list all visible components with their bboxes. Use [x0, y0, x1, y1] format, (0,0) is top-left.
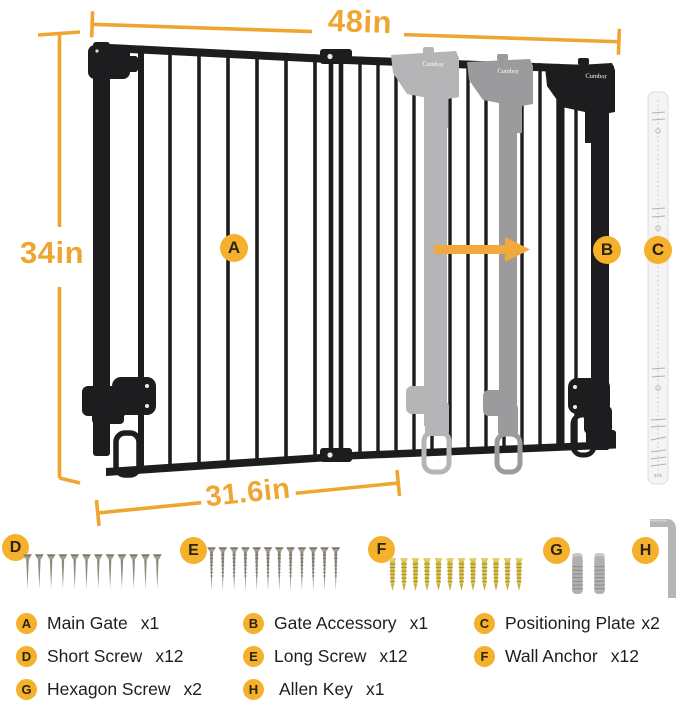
brand-logo: Cumbor	[422, 61, 444, 69]
positioning-plate: 34in	[648, 92, 668, 484]
wall-anchor-icons	[388, 558, 528, 594]
legend-badge-f: F	[474, 646, 495, 667]
legend-count: x1	[366, 679, 384, 700]
parts-group-allen-key: H	[632, 537, 678, 603]
product-diagram: Cumbor Cumbor Cumbor	[0, 0, 679, 705]
legend-count: x12	[155, 646, 183, 667]
legend-badge-b: B	[243, 613, 264, 634]
junction-clamps	[320, 49, 352, 462]
part-badge-g: G	[543, 537, 570, 564]
legend-item-wall-anchor: F Wall Anchor x12	[474, 646, 669, 667]
brand-logo: Cumbor	[497, 68, 519, 76]
legend-label: Wall Anchor	[505, 646, 598, 667]
legend-badge-d: D	[16, 646, 37, 667]
dimension-height-left: 34in	[13, 237, 91, 268]
short-screw-icons	[23, 554, 169, 594]
legend-label: Gate Accessory	[274, 613, 397, 634]
parts-group-hexagon-screws: G	[543, 537, 613, 603]
legend-label: Allen Key	[279, 679, 353, 700]
extension-bars	[360, 57, 576, 459]
legend-badge-a: A	[16, 613, 37, 634]
long-screw-icons	[207, 547, 343, 597]
legend-badge-g: G	[16, 679, 37, 700]
legend-item-short-screw: D Short Screw x12	[16, 646, 243, 667]
legend-count: x1	[410, 613, 428, 634]
dimension-width-top: 48in	[314, 4, 405, 38]
parts-group-short-screws: D	[2, 534, 172, 600]
legend-item-gate-accessory: B Gate Accessory x1	[243, 613, 474, 634]
parts-group-wall-anchors: F	[368, 536, 528, 602]
legend-count: x12	[379, 646, 407, 667]
left-post	[82, 42, 156, 456]
callout-c-positioning-plate: C	[644, 236, 672, 264]
callout-b-gate-accessory: B	[593, 236, 621, 264]
legend-item-long-screw: E Long Screw x12	[243, 646, 474, 667]
legend-item-allen-key: H Allen Key x1	[243, 679, 474, 700]
plate-micro-label: 34in	[654, 473, 663, 478]
legend-badge-h: H	[243, 679, 264, 700]
legend-label: Long Screw	[274, 646, 366, 667]
brand-logo: Cumbor	[585, 73, 607, 81]
allen-key-icon	[642, 514, 678, 602]
hexagon-screw-icons	[569, 553, 609, 595]
parts-group-long-screws: E	[180, 537, 346, 603]
legend-badge-e: E	[243, 646, 264, 667]
legend-item-main-gate: A Main Gate x1	[16, 613, 243, 634]
legend-label: Short Screw	[47, 646, 142, 667]
legend-count: x2	[184, 679, 202, 700]
legend-item-positioning-plate: C Positioning Plate x2	[474, 613, 669, 634]
legend-count: x2	[641, 613, 659, 634]
legend-count: x12	[611, 646, 639, 667]
parts-legend: A Main Gate x1 B Gate Accessory x1 C Pos…	[16, 613, 669, 700]
gate-illustration: Cumbor Cumbor Cumbor	[0, 0, 679, 530]
callout-a-main-gate: A	[220, 234, 248, 262]
legend-label: Hexagon Screw	[47, 679, 171, 700]
part-badge-e: E	[180, 537, 207, 564]
legend-label: Main Gate	[47, 613, 128, 634]
legend-label: Positioning Plate	[505, 613, 635, 634]
legend-count: x1	[141, 613, 159, 634]
legend-badge-c: C	[474, 613, 495, 634]
legend-item-hexagon-screw: G Hexagon Screw x2	[16, 679, 243, 700]
